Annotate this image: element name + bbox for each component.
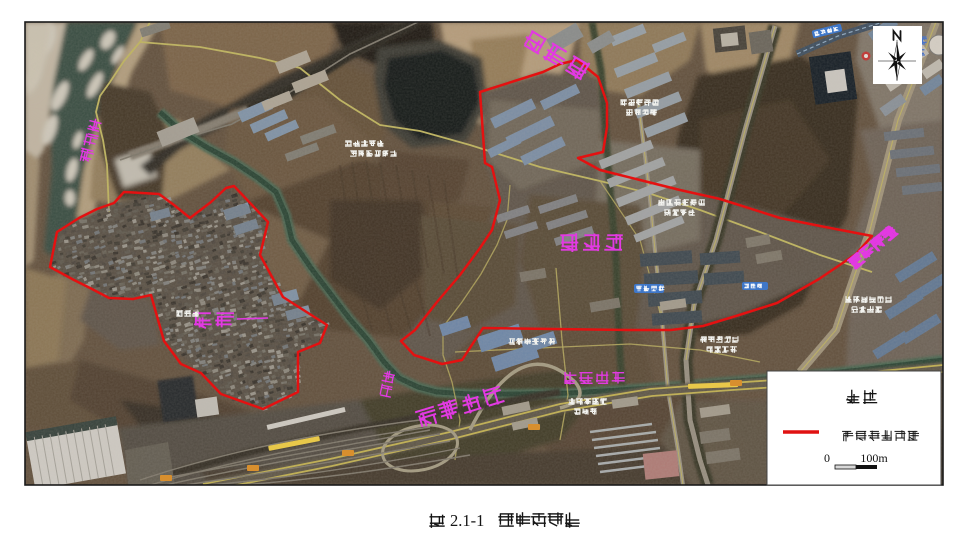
svg-text:2.1-1: 2.1-1 xyxy=(450,511,484,530)
svg-text:0: 0 xyxy=(824,451,830,465)
svg-text:100m: 100m xyxy=(860,451,888,465)
